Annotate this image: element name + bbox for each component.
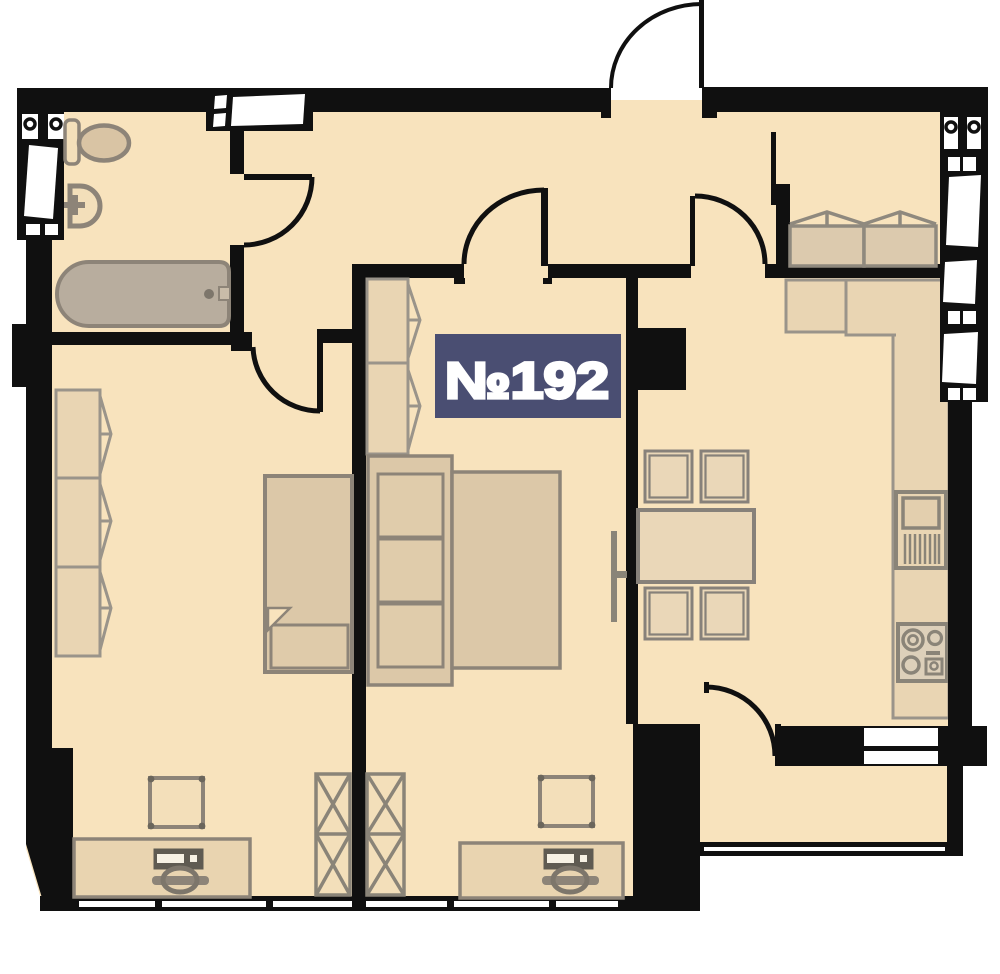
svg-text:№192: №192 — [445, 352, 609, 409]
